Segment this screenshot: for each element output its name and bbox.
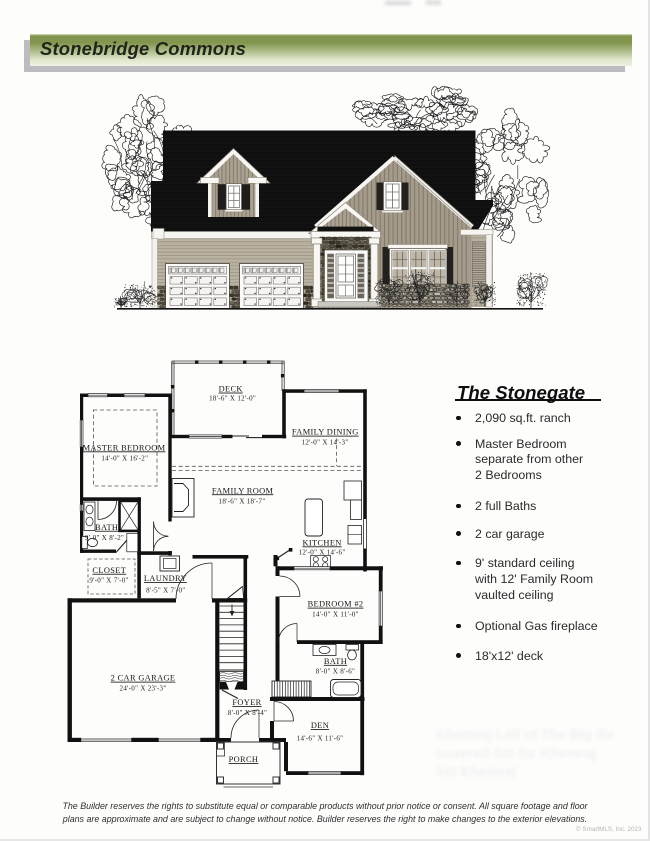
svg-text:8'-0" X 8'-6": 8'-0" X 8'-6" (316, 667, 355, 675)
svg-text:18'-6" X 12'-0": 18'-6" X 12'-0" (209, 395, 256, 403)
svg-text:KITCHEN: KITCHEN (302, 538, 341, 547)
svg-text:14'-6" X 11'-6": 14'-6" X 11'-6" (297, 734, 344, 742)
svg-text:FOYER: FOYER (232, 698, 261, 707)
svg-text:24'-0" X 23'-3": 24'-0" X 23'-3" (120, 685, 167, 693)
svg-text:PORCH: PORCH (229, 755, 259, 764)
svg-text:14'-0" X 16'-2": 14'-0" X 16'-2" (101, 454, 148, 462)
svg-text:FAMILY DINING: FAMILY DINING (292, 428, 359, 437)
svg-text:FAMILY ROOM: FAMILY ROOM (212, 486, 274, 495)
svg-text:14'-0" X 11'-0": 14'-0" X 11'-0" (312, 610, 359, 618)
svg-text:BEDROOM #2: BEDROOM #2 (308, 600, 364, 609)
svg-text:9'-0" X 8'-2": 9'-0" X 8'-2" (85, 534, 124, 542)
svg-text:18'-6" X 18'-7": 18'-6" X 18'-7" (219, 498, 266, 506)
svg-text:12'-0" X 14'-3": 12'-0" X 14'-3" (302, 439, 349, 447)
svg-text:8'-5" X 7'-0": 8'-5" X 7'-0" (146, 586, 185, 594)
svg-text:9'-0" X 7'-0": 9'-0" X 7'-0" (89, 576, 128, 584)
svg-text:2 CAR GARAGE: 2 CAR GARAGE (111, 674, 176, 683)
svg-text:DEN: DEN (311, 721, 329, 730)
svg-text:BATH: BATH (95, 523, 118, 532)
svg-text:BATH: BATH (324, 657, 347, 666)
svg-text:CLOSET: CLOSET (92, 566, 126, 575)
svg-text:MASTER BEDROOM: MASTER BEDROOM (83, 443, 166, 452)
svg-text:8'-0" X 8'-4": 8'-0" X 8'-4" (228, 709, 267, 717)
svg-text:dn: dn (235, 598, 240, 603)
svg-text:DECK: DECK (219, 385, 243, 394)
